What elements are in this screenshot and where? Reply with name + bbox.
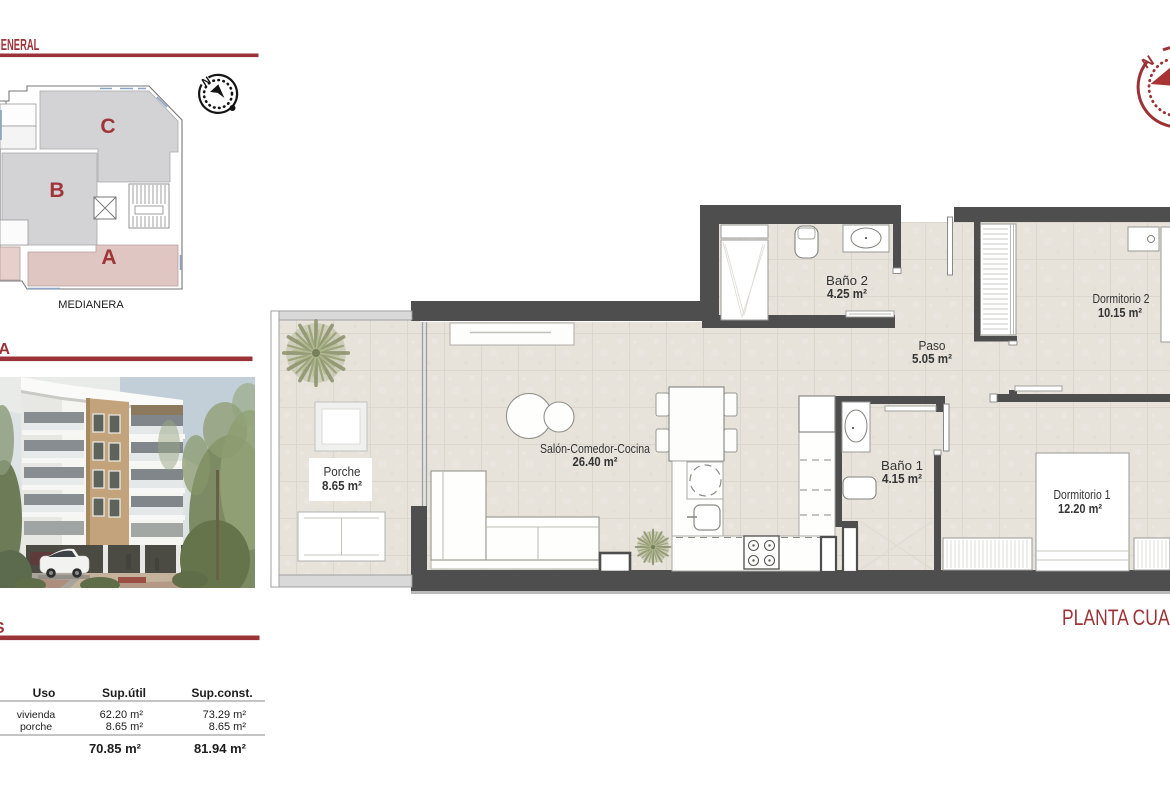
svg-text:5.05 m²: 5.05 m² xyxy=(912,352,952,366)
svg-text:A: A xyxy=(101,246,116,269)
svg-text:Sup.const.: Sup.const. xyxy=(191,686,252,700)
svg-text:12.20 m²: 12.20 m² xyxy=(1058,502,1102,516)
svg-text:GENERAL: GENERAL xyxy=(0,37,40,54)
svg-text:8.65 m²: 8.65 m² xyxy=(106,721,144,733)
svg-text:INFOGRAFÍA: INFOGRAFÍA xyxy=(0,339,10,358)
svg-text:73.29 m²: 73.29 m² xyxy=(203,709,247,721)
svg-text:MEDIANERA: MEDIANERA xyxy=(58,299,124,311)
svg-text:porche: porche xyxy=(20,721,52,733)
svg-text:Dormitorio 2: Dormitorio 2 xyxy=(1093,292,1150,306)
svg-text:Sup.útil: Sup.útil xyxy=(102,686,146,700)
svg-text:SUPERFICIES: SUPERFICIES xyxy=(0,620,5,637)
svg-text:Baño 1: Baño 1 xyxy=(881,459,923,473)
svg-text:62.20 m²: 62.20 m² xyxy=(100,709,144,721)
svg-text:PLANTA CUARTA: PLANTA CUARTA xyxy=(1062,605,1170,630)
svg-text:Paso: Paso xyxy=(919,339,946,353)
svg-text:Uso: Uso xyxy=(33,686,56,700)
svg-text:4.25 m²: 4.25 m² xyxy=(827,287,867,301)
svg-text:4.15 m²: 4.15 m² xyxy=(882,472,922,486)
svg-text:C: C xyxy=(100,115,115,138)
svg-text:Dormitorio 1: Dormitorio 1 xyxy=(1054,488,1111,502)
svg-text:Baño 2: Baño 2 xyxy=(826,274,868,288)
svg-text:10.15 m²: 10.15 m² xyxy=(1098,306,1142,320)
svg-text:Porche: Porche xyxy=(324,465,361,479)
svg-text:Salón-Comedor-Cocina: Salón-Comedor-Cocina xyxy=(540,442,650,456)
svg-text:B: B xyxy=(49,179,64,202)
svg-text:vivienda: vivienda xyxy=(17,709,56,721)
svg-text:70.85 m²: 70.85 m² xyxy=(89,741,142,756)
svg-text:26.40 m²: 26.40 m² xyxy=(573,455,618,469)
svg-text:8.65 m²: 8.65 m² xyxy=(322,479,362,493)
svg-text:8.65 m²: 8.65 m² xyxy=(209,721,247,733)
svg-text:81.94 m²: 81.94 m² xyxy=(194,741,247,756)
